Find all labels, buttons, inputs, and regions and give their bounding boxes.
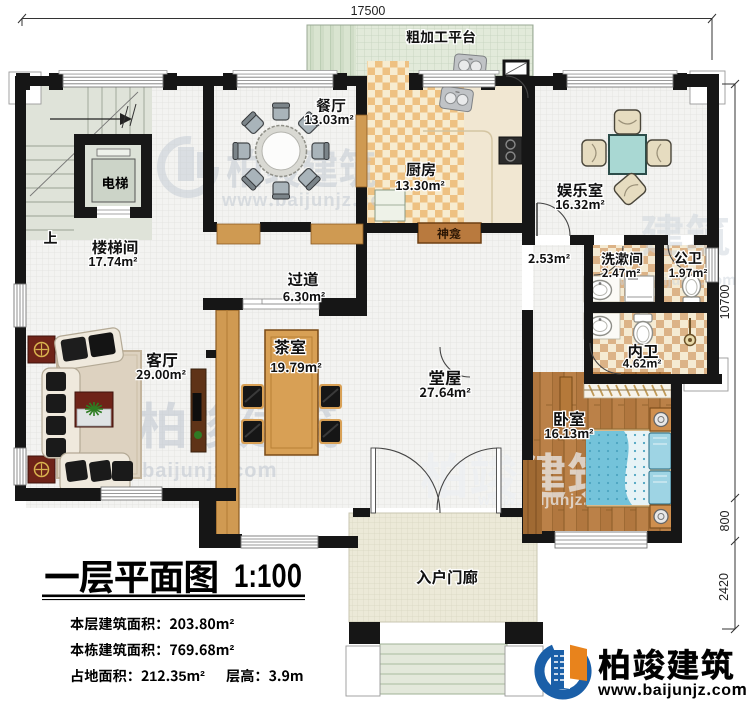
svg-text:入户门廊: 入户门廊 [416, 566, 478, 588]
svg-text:2420: 2420 [717, 573, 731, 601]
svg-text:电梯: 电梯 [102, 172, 129, 192]
svg-text:4.62m²: 4.62m² [623, 356, 662, 372]
svg-text:19.79m²: 19.79m² [270, 357, 322, 376]
svg-text:16.13m²: 16.13m² [545, 423, 594, 442]
svg-text:茶室: 茶室 [274, 334, 306, 358]
svg-text:13.03m²: 13.03m² [304, 109, 353, 128]
svg-text:www.baijunjz.com: www.baijunjz.com [597, 676, 747, 700]
svg-text:一层平面图: 一层平面图 [44, 549, 218, 601]
svg-text:2.47m²: 2.47m² [602, 265, 641, 281]
svg-text:www.baijunjz.com: www.baijunjz.com [221, 186, 401, 212]
svg-text:1:100: 1:100 [234, 551, 302, 597]
svg-text:本层建筑面积：203.80m²: 本层建筑面积：203.80m² [70, 614, 234, 634]
svg-text:13.30m²: 13.30m² [395, 175, 444, 194]
svg-text:10700: 10700 [718, 285, 732, 320]
svg-text:神龛: 神龛 [437, 225, 461, 242]
svg-text:16.32m²: 16.32m² [555, 194, 604, 213]
svg-text:粗加工平台: 粗加工平台 [406, 27, 476, 47]
svg-text:27.64m²: 27.64m² [419, 382, 471, 401]
svg-text:17.74m²: 17.74m² [89, 251, 138, 270]
svg-text:占地面积：212.35m²: 占地面积：212.35m² [70, 666, 205, 686]
svg-text:2.53m²: 2.53m² [528, 248, 570, 267]
svg-text:本栋建筑面积：769.68m²: 本栋建筑面积：769.68m² [70, 640, 234, 660]
svg-text:800: 800 [718, 511, 732, 532]
svg-text:层高：3.9m: 层高：3.9m [226, 666, 304, 686]
svg-text:1.97m²: 1.97m² [669, 265, 708, 281]
svg-text:6.30m²: 6.30m² [283, 286, 325, 305]
svg-text:上: 上 [44, 228, 58, 248]
svg-text:17500: 17500 [351, 4, 386, 18]
svg-text:29.00m²: 29.00m² [136, 364, 186, 383]
